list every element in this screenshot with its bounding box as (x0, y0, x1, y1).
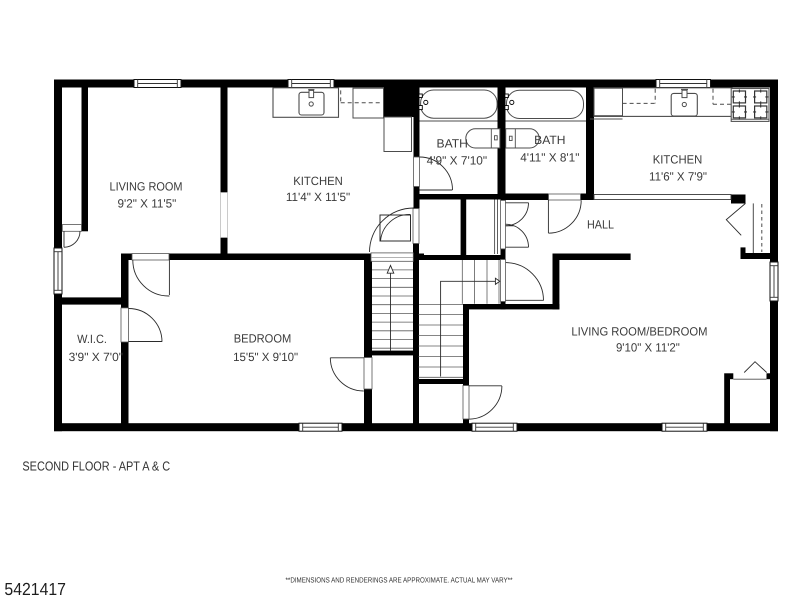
svg-text:LIVING ROOM: LIVING ROOM (110, 180, 183, 194)
svg-text:3'9" X 7'0": 3'9" X 7'0" (69, 350, 123, 364)
svg-text:KITCHEN: KITCHEN (653, 152, 703, 166)
svg-text:11'4" X 11'5": 11'4" X 11'5" (286, 190, 350, 204)
svg-text:**DIMENSIONS AND RENDERINGS AR: **DIMENSIONS AND RENDERINGS ARE APPROXIM… (286, 575, 513, 584)
svg-text:BATH: BATH (534, 133, 565, 147)
svg-text:BEDROOM: BEDROOM (234, 331, 292, 345)
svg-text:9'10" X 11'2": 9'10" X 11'2" (616, 341, 680, 355)
svg-text:9'2" X 11'5": 9'2" X 11'5" (118, 196, 177, 210)
svg-text:5421417: 5421417 (4, 579, 66, 599)
svg-text:SECOND FLOOR - APT A & C: SECOND FLOOR - APT A & C (22, 458, 170, 473)
svg-text:LIVING ROOM/BEDROOM: LIVING ROOM/BEDROOM (571, 325, 707, 339)
svg-text:15'5" X 9'10": 15'5" X 9'10" (233, 350, 298, 364)
svg-text:11'6" X 7'9": 11'6" X 7'9" (649, 169, 707, 183)
svg-text:W.I.C.: W.I.C. (77, 332, 107, 346)
svg-text:HALL: HALL (587, 217, 614, 231)
svg-text:KITCHEN: KITCHEN (293, 174, 343, 188)
svg-text:4'11" X 8'1": 4'11" X 8'1" (520, 151, 579, 165)
svg-text:BATH: BATH (437, 137, 468, 151)
svg-text:4'9" X 7'10": 4'9" X 7'10" (427, 153, 488, 167)
